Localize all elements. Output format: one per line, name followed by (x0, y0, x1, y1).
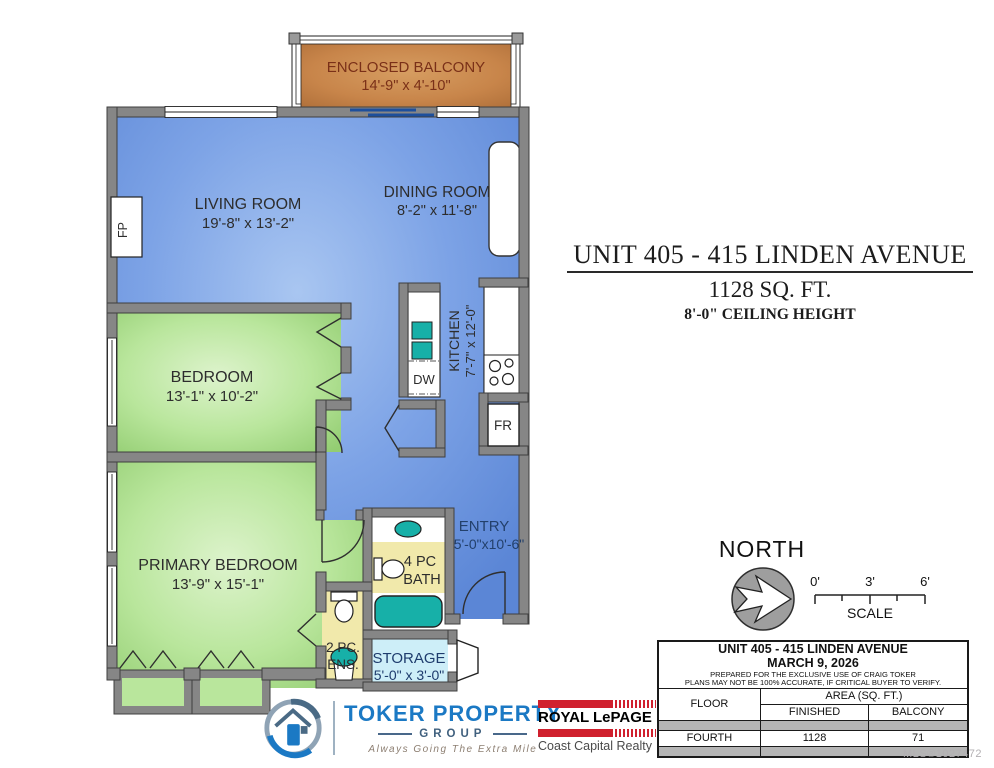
fireplace-label: FP (116, 222, 130, 238)
bedroom-dims: 13'-1" x 10'-2" (166, 388, 258, 405)
info-table: UNIT 405 - 415 LINDEN AVENUE MARCH 9, 20… (657, 640, 969, 758)
bath-label-2: BATH (403, 572, 441, 588)
table-note-2: PLANS MAY NOT BE 100% ACCURATE, IF CRITI… (659, 679, 967, 688)
bath-label-1: 4 PC (404, 554, 436, 570)
unit-area: 1128 SQ. FT. (560, 277, 980, 303)
living-room-label: LIVING ROOM (195, 196, 302, 213)
bath-toilet (374, 558, 382, 580)
unit-address: UNIT 405 - 415 LINDEN AVENUE (560, 240, 980, 273)
royal-bar-bottom (538, 729, 656, 737)
table-row: FOURTH 1128 71 (658, 731, 968, 747)
stove (484, 355, 519, 393)
ceiling-height: 8'-0" CEILING HEIGHT (560, 306, 980, 324)
dash-left (378, 733, 412, 735)
royal-sub: Coast Capital Realty (538, 739, 656, 753)
title-block: UNIT 405 - 415 LINDEN AVENUE 1128 SQ. FT… (560, 240, 980, 324)
scale-tick-3: 3' (865, 574, 875, 589)
mls-watermark: MLS®1027472 (903, 748, 982, 760)
fridge-label: FR (494, 418, 512, 433)
entry-dims: 5'-0"x10'-6" (454, 536, 525, 552)
primary-bedroom-dims: 13'-9" x 15'-1" (172, 576, 264, 593)
toker-name: TOKER PROPERTY (344, 701, 562, 727)
cell-finished: 1128 (760, 731, 869, 747)
dining-room-dims: 8'-2" x 11'-8" (397, 203, 477, 219)
compass: NORTH (719, 536, 805, 630)
scale-bar: 0' 3' 6' SCALE (810, 574, 930, 621)
cell-balcony: 71 (869, 731, 968, 747)
table-date: MARCH 9, 2026 (659, 656, 967, 670)
balcony-dims: 14'-9" x 4'-10" (361, 78, 450, 94)
primary-bedroom-label: PRIMARY BEDROOM (138, 557, 297, 574)
north-label: NORTH (719, 536, 805, 562)
kitchen-sink (412, 322, 432, 339)
cell-floor: FOURTH (658, 731, 760, 747)
floorplan-page: ENCLOSED BALCONY 14'-9" x 4'-10" LIVING … (0, 0, 994, 768)
ensuite-label-2: ENS. (327, 657, 359, 672)
bedroom-label: BEDROOM (171, 369, 254, 386)
balcony-label: ENCLOSED BALCONY (327, 59, 485, 76)
scale-tick-0: 0' (810, 574, 820, 589)
storage-label: STORAGE (372, 650, 445, 667)
bathtub (375, 596, 442, 627)
col-header-balcony: BALCONY (869, 705, 968, 721)
kitchen-dims: 7'-7" x 12'-0" (463, 304, 478, 377)
toker-logo: TOKER PROPERTY GROUP Always Going The Ex… (262, 694, 562, 762)
dining-room-label: DINING ROOM (384, 184, 491, 201)
entry-label: ENTRY (459, 518, 510, 535)
toker-logo-icon (262, 697, 324, 759)
royal-bar-top (538, 700, 656, 708)
dining-buffet (489, 142, 520, 256)
toker-group: GROUP (419, 728, 486, 740)
col-header-area: AREA (SQ. FT.) (760, 689, 968, 705)
kitchen-label: KITCHEN (446, 310, 462, 371)
living-room-dims: 19'-8" x 13'-2" (202, 215, 294, 232)
bath-sink (395, 521, 421, 537)
table-spacer-row (658, 721, 968, 731)
col-header-floor: FLOOR (658, 689, 760, 721)
scale-tick-6: 6' (920, 574, 930, 589)
dash-right (493, 733, 527, 735)
toker-tagline: Always Going The Extra Mile (368, 744, 537, 755)
logo-divider (333, 701, 335, 755)
scale-label: SCALE (847, 605, 893, 621)
ensuite-label-1: 2 PC. (326, 640, 360, 655)
royal-name: ROYAL LePAGE (538, 710, 656, 727)
dishwasher-label: DW (413, 372, 435, 387)
col-header-finished: FINISHED (760, 705, 869, 721)
table-title: UNIT 405 - 415 LINDEN AVENUE (659, 642, 967, 656)
storage-dims: 5'-0" x 3'-0" (374, 667, 445, 683)
royal-lepage-logo: ROYAL LePAGE Coast Capital Realty (538, 700, 656, 753)
